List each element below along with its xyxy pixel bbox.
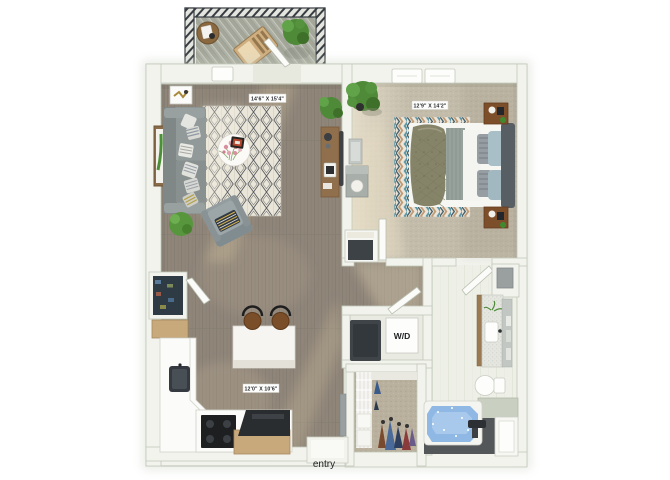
svg-text:W/D: W/D <box>394 331 411 341</box>
svg-text:12'9" X 14'2": 12'9" X 14'2" <box>414 104 447 110</box>
svg-text:entry: entry <box>313 459 335 470</box>
svg-text:14'6" X 15'4": 14'6" X 15'4" <box>251 97 284 103</box>
svg-text:12'0" X 10'6": 12'0" X 10'6" <box>245 387 278 393</box>
